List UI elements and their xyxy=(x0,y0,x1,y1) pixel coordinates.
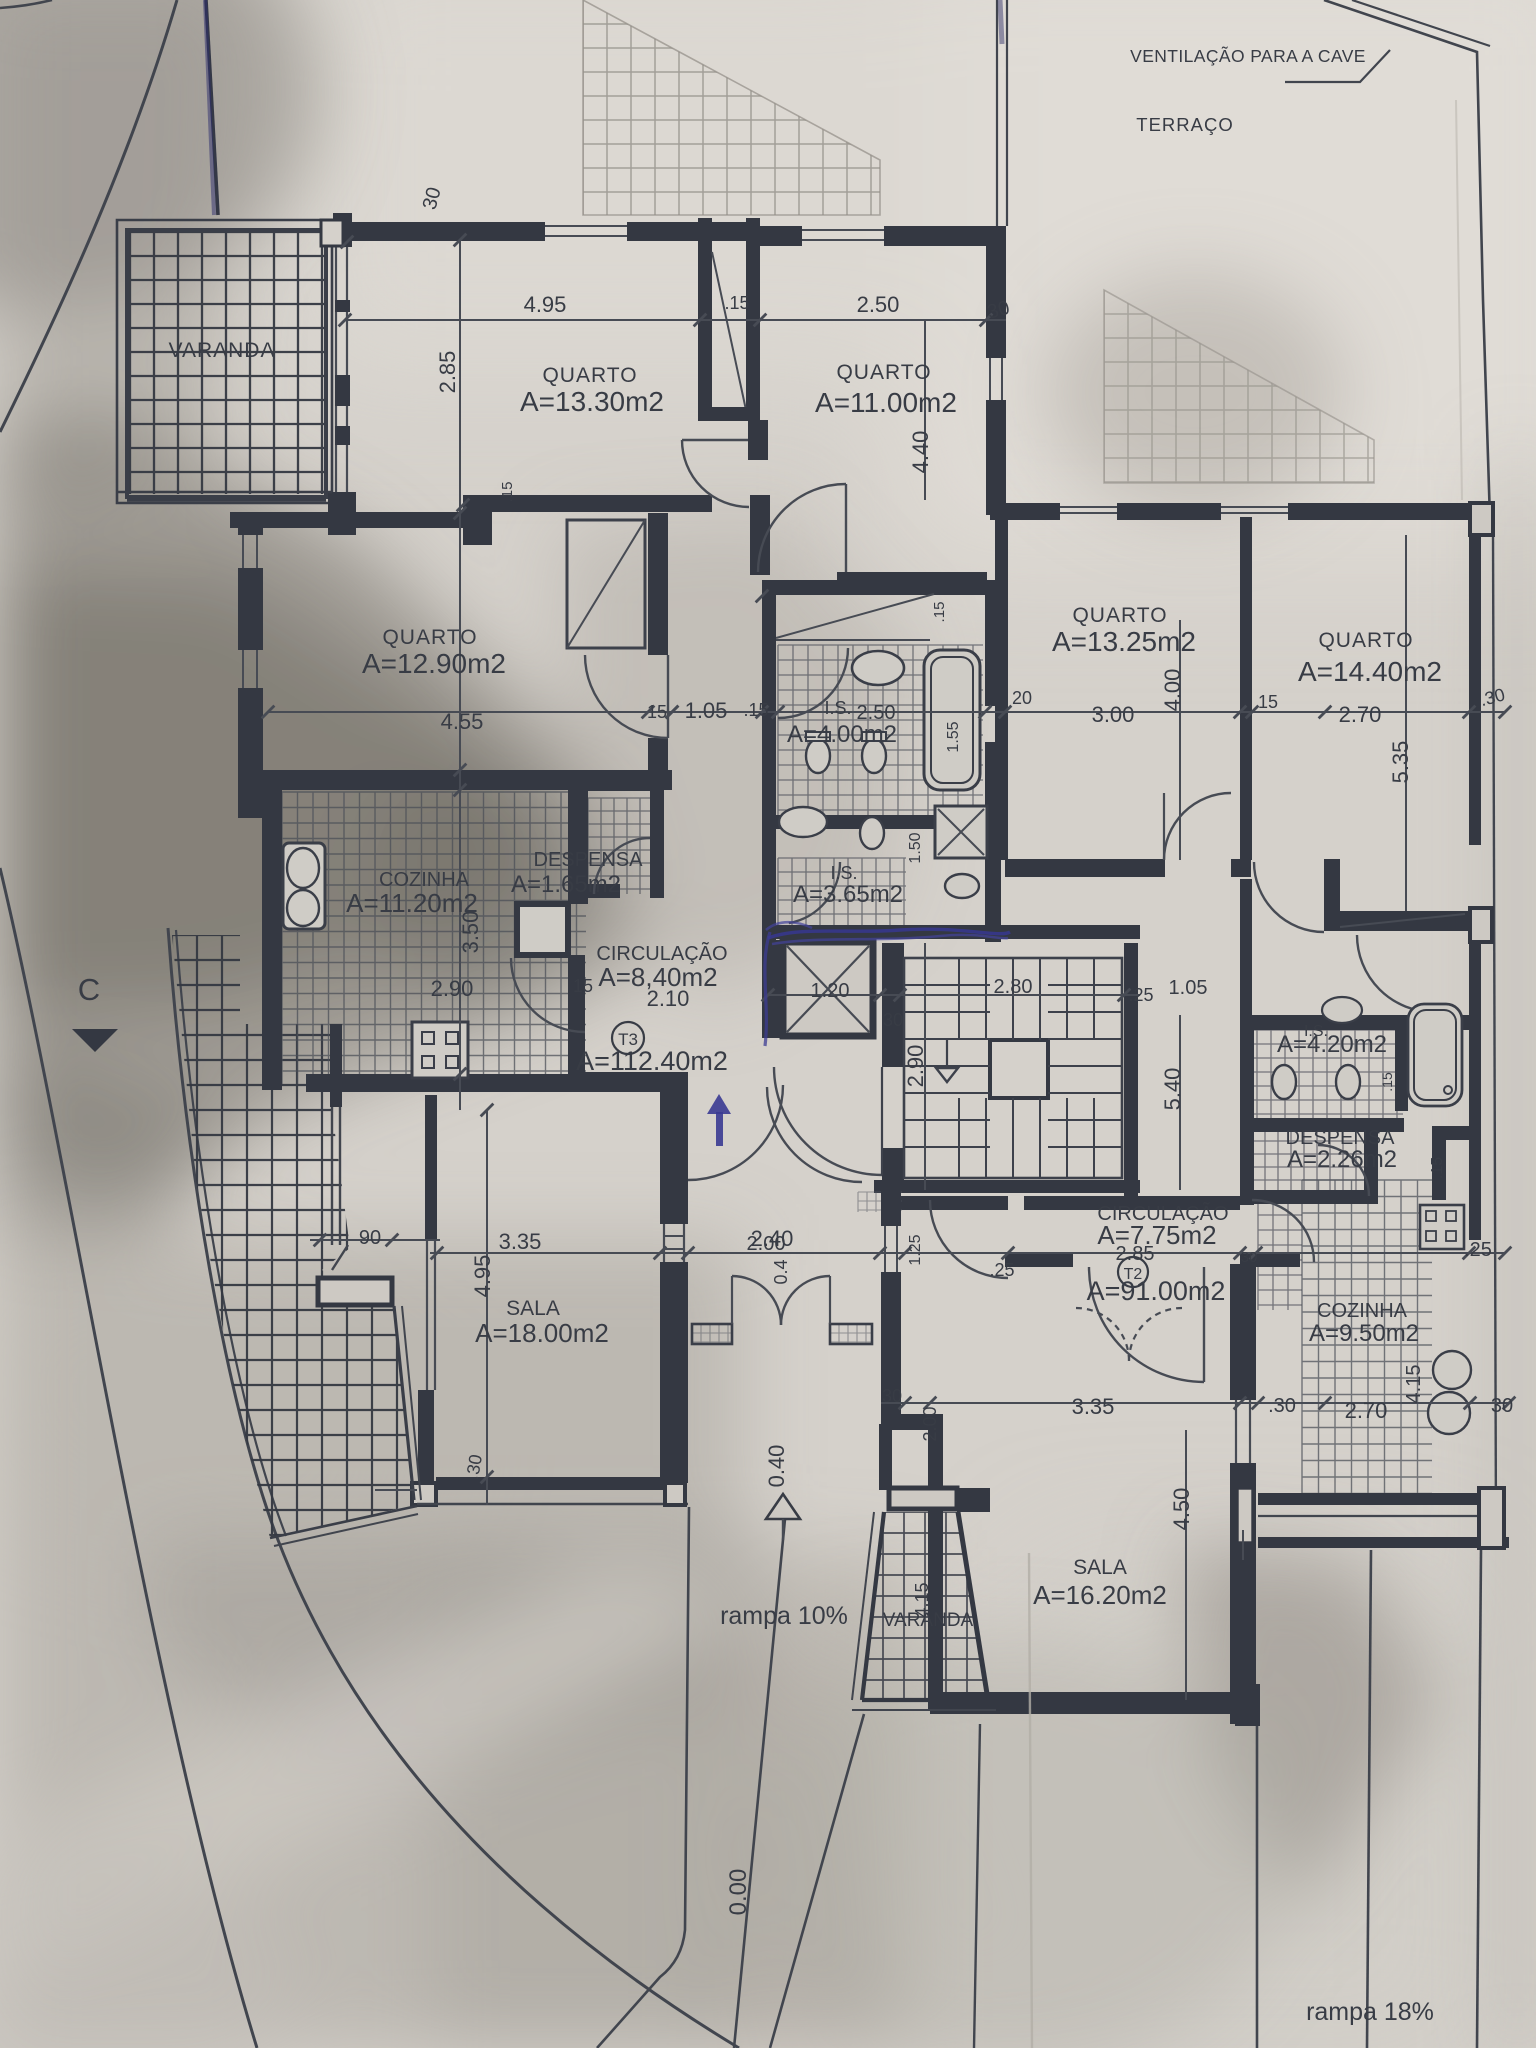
svg-text:VENTILAÇÃO PARA A CAVE: VENTILAÇÃO PARA A CAVE xyxy=(1130,45,1366,66)
svg-text:COZINHA: COZINHA xyxy=(1317,1300,1408,1322)
svg-text:2.70: 2.70 xyxy=(1345,1398,1388,1423)
svg-text:QUARTO: QUARTO xyxy=(1072,604,1167,627)
svg-text:2.10: 2.10 xyxy=(647,986,690,1011)
svg-text:A=16.20m2: A=16.20m2 xyxy=(1033,1580,1167,1610)
svg-text:2.90: 2.90 xyxy=(903,1045,928,1088)
svg-text:3.00: 3.00 xyxy=(1092,702,1135,727)
svg-text:1.05: 1.05 xyxy=(1169,977,1208,999)
svg-text:30: 30 xyxy=(883,1010,903,1030)
svg-text:I.S.: I.S. xyxy=(830,863,857,883)
svg-text:2.50: 2.50 xyxy=(857,292,900,317)
svg-text:30: 30 xyxy=(1491,1395,1513,1417)
svg-text:A=4.00m2: A=4.00m2 xyxy=(787,721,897,748)
svg-text:.30: .30 xyxy=(462,1453,486,1481)
svg-text:30: 30 xyxy=(1241,1249,1258,1266)
svg-text:.15: .15 xyxy=(1429,1157,1446,1179)
svg-text:4.95: 4.95 xyxy=(524,292,567,317)
svg-text:2.70: 2.70 xyxy=(1339,702,1382,727)
svg-text:A=13.25m2: A=13.25m2 xyxy=(1052,626,1196,657)
svg-text:DESPENSA: DESPENSA xyxy=(534,849,644,871)
svg-text:.15: .15 xyxy=(499,482,516,503)
svg-text:.30: .30 xyxy=(1268,1395,1296,1417)
svg-text:VARANDA: VARANDA xyxy=(169,339,276,362)
svg-text:3.35: 3.35 xyxy=(499,1229,542,1254)
svg-text:QUARTO: QUARTO xyxy=(542,364,637,387)
svg-text:.25: .25 xyxy=(1128,985,1153,1005)
svg-text:1.25: 1.25 xyxy=(907,1234,924,1265)
svg-text:A=9.50m2: A=9.50m2 xyxy=(1309,1320,1419,1347)
svg-text:15: 15 xyxy=(647,702,667,722)
svg-text:20: 20 xyxy=(1012,688,1032,708)
svg-text:rampa 10%: rampa 10% xyxy=(720,1602,848,1630)
svg-text:.15: .15 xyxy=(743,700,768,720)
svg-text:5.40: 5.40 xyxy=(1160,1068,1185,1111)
svg-text:QUARTO: QUARTO xyxy=(836,361,931,384)
svg-text:QUARTO: QUARTO xyxy=(1318,629,1413,652)
svg-text:90: 90 xyxy=(359,1227,381,1249)
svg-text:1.05: 1.05 xyxy=(685,698,728,723)
svg-text:.15: .15 xyxy=(1379,1072,1395,1092)
svg-text:4.15: 4.15 xyxy=(912,1582,932,1617)
svg-text:A=11.00m2: A=11.00m2 xyxy=(815,387,957,418)
svg-text:QUARTO: QUARTO xyxy=(382,626,477,649)
svg-text:.15: .15 xyxy=(931,602,948,623)
svg-text:1.55: 1.55 xyxy=(945,721,962,752)
svg-text:.15: .15 xyxy=(724,293,749,313)
svg-text:.25: .25 xyxy=(1464,1239,1492,1261)
svg-text:5.35: 5.35 xyxy=(1388,741,1413,784)
svg-text:A=91.00m2: A=91.00m2 xyxy=(1087,1276,1226,1306)
svg-text:.25: .25 xyxy=(989,1260,1014,1280)
svg-text:2.80: 2.80 xyxy=(994,976,1033,998)
svg-text:A=4.20m2: A=4.20m2 xyxy=(1277,1031,1387,1058)
svg-text:4.40: 4.40 xyxy=(908,431,933,474)
svg-text:3.35: 3.35 xyxy=(1072,1394,1115,1419)
svg-text:A=3.65m2: A=3.65m2 xyxy=(793,881,903,908)
svg-text:rampa 18%: rampa 18% xyxy=(1306,1998,1434,2026)
svg-text:30: 30 xyxy=(882,1386,902,1406)
svg-text:4.50: 4.50 xyxy=(1169,1488,1194,1531)
svg-text:2.00: 2.00 xyxy=(920,1406,940,1441)
svg-text:C: C xyxy=(78,972,100,1007)
svg-text:0.40: 0.40 xyxy=(764,1445,789,1488)
svg-text:0.00: 0.00 xyxy=(725,1869,752,1916)
svg-text:15: 15 xyxy=(1258,692,1278,712)
svg-text:A=1.65m2: A=1.65m2 xyxy=(511,871,621,898)
svg-text:4.55: 4.55 xyxy=(441,709,484,734)
svg-text:A=112.40m2: A=112.40m2 xyxy=(576,1046,728,1076)
svg-text:SALA: SALA xyxy=(1073,1556,1127,1579)
svg-text:2.85: 2.85 xyxy=(435,351,460,394)
svg-text:SALA: SALA xyxy=(506,1297,560,1320)
svg-text:A=14.40m2: A=14.40m2 xyxy=(1298,656,1442,687)
svg-text:1.20: 1.20 xyxy=(811,980,850,1002)
svg-text:2.90: 2.90 xyxy=(431,976,474,1001)
svg-text:0.4: 0.4 xyxy=(771,1259,791,1284)
svg-text:I.S.: I.S. xyxy=(824,698,851,718)
svg-text:3.50: 3.50 xyxy=(458,911,483,954)
svg-text:2.00: 2.00 xyxy=(747,1233,786,1255)
svg-text:4.95: 4.95 xyxy=(470,1255,495,1298)
svg-text:A=2.26m2: A=2.26m2 xyxy=(1287,1146,1397,1173)
svg-text:A=12.90m2: A=12.90m2 xyxy=(362,648,506,679)
svg-text:A=18.00m2: A=18.00m2 xyxy=(475,1318,609,1348)
svg-text:15: 15 xyxy=(573,976,593,996)
svg-text:4.15: 4.15 xyxy=(1403,1365,1425,1404)
svg-text:1.50: 1.50 xyxy=(907,832,924,863)
svg-text:TERRAÇO: TERRAÇO xyxy=(1136,114,1233,135)
svg-text:A=13.30m2: A=13.30m2 xyxy=(520,386,664,417)
svg-text:4.00: 4.00 xyxy=(1160,669,1185,712)
